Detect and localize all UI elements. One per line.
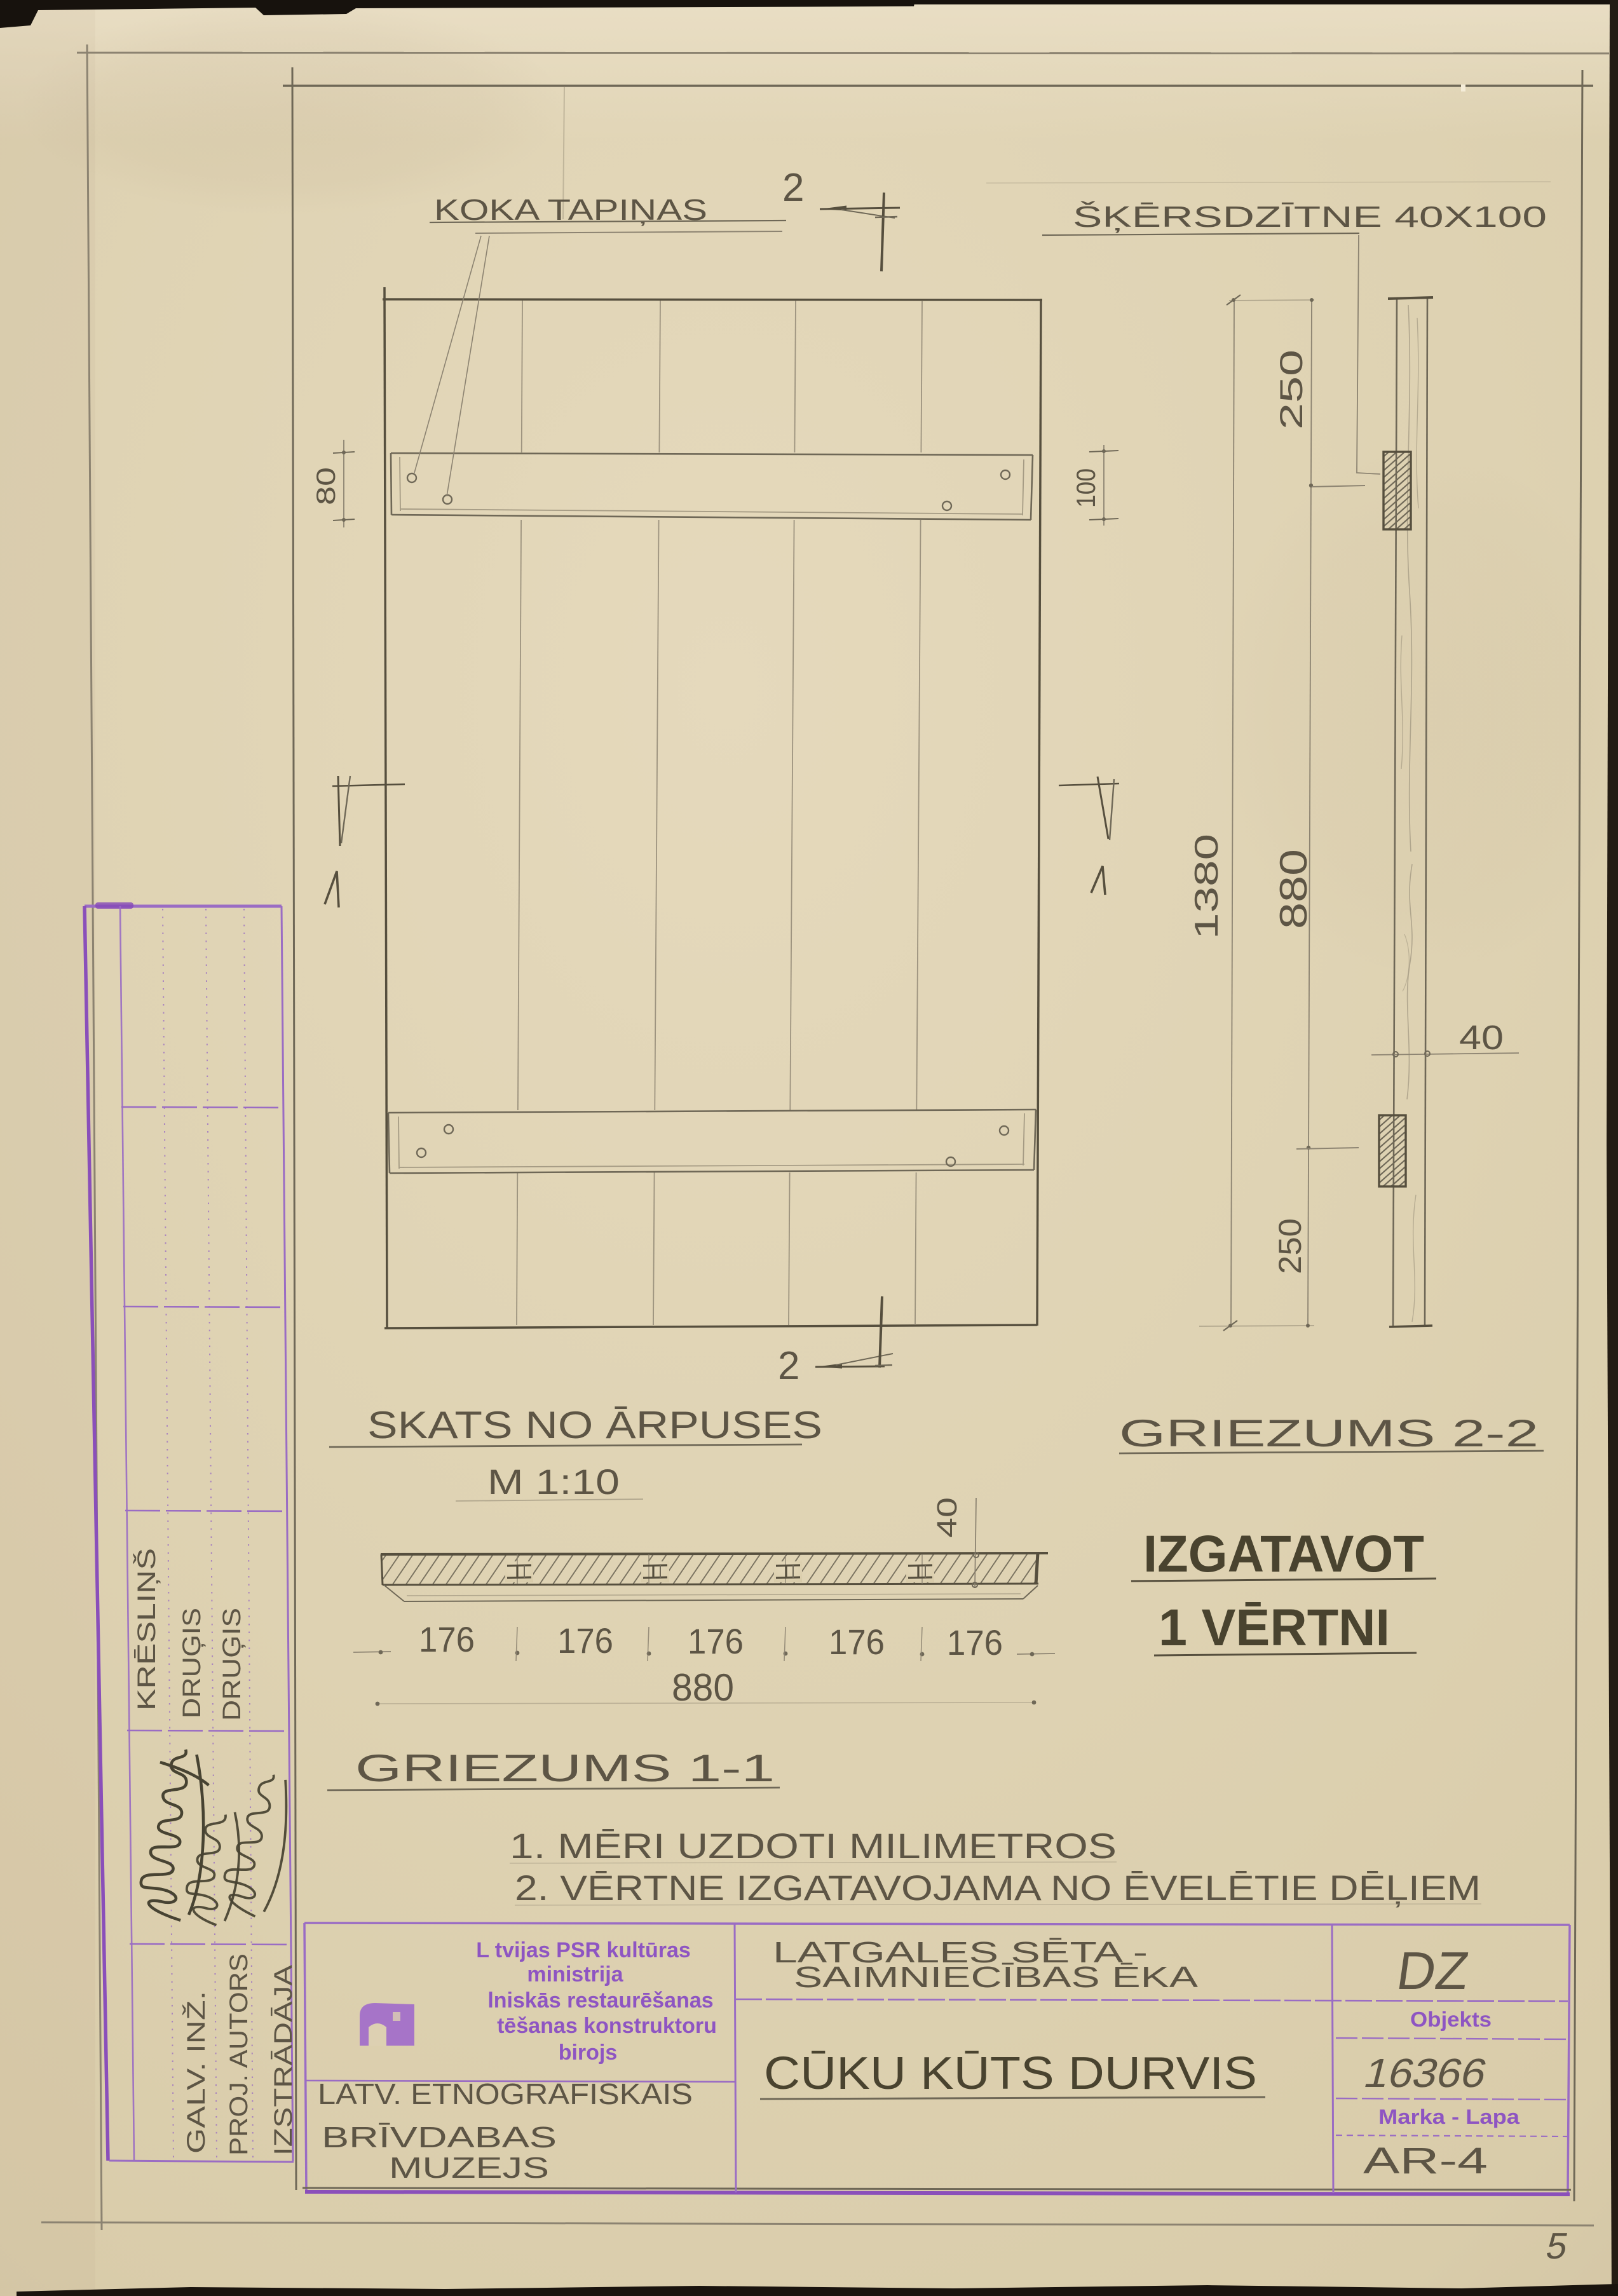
svg-text:GRIEZUMS 2-2: GRIEZUMS 2-2 — [1119, 1412, 1539, 1455]
svg-text:40: 40 — [932, 1497, 963, 1538]
svg-text:tēšanas konstruktoru: tēšanas konstruktoru — [497, 2014, 717, 2038]
svg-text:176: 176 — [688, 1621, 744, 1661]
svg-text:176: 176 — [829, 1622, 885, 1662]
svg-text:1380: 1380 — [1188, 834, 1225, 939]
svg-text:IZSTRĀDĀJA: IZSTRĀDĀJA — [269, 1965, 297, 2156]
svg-text:880: 880 — [672, 1666, 734, 1709]
svg-text:LATV. ETNOGRAFISKAIS: LATV. ETNOGRAFISKAIS — [318, 2077, 693, 2110]
svg-text:PROJ. AUTORS: PROJ. AUTORS — [225, 1953, 253, 2156]
svg-text:176: 176 — [947, 1622, 1003, 1662]
svg-text:GRIEZUMS 1-1: GRIEZUMS 1-1 — [355, 1747, 775, 1790]
svg-text:L tvijas PSR kultūras: L tvijas PSR kultūras — [476, 1938, 691, 1962]
svg-text:250: 250 — [1274, 350, 1309, 430]
svg-text:16366: 16366 — [1360, 2050, 1492, 2096]
svg-text:Marka - Lapa: Marka - Lapa — [1378, 2105, 1519, 2128]
svg-text:2: 2 — [778, 1344, 799, 1388]
svg-text:BRĪVDABAS: BRĪVDABAS — [322, 2121, 557, 2154]
svg-text:Objekts: Objekts — [1410, 2007, 1492, 2031]
svg-text:DRUĢIS: DRUĢIS — [218, 1608, 246, 1721]
svg-text:176: 176 — [557, 1620, 613, 1661]
svg-text:CŪKU KŪTS DURVIS: CŪKU KŪTS DURVIS — [764, 2048, 1257, 2099]
svg-text:ministrija: ministrija — [527, 1962, 623, 1987]
svg-text:lniskās restaurēšanas: lniskās restaurēšanas — [487, 1988, 713, 2013]
svg-text:250: 250 — [1272, 1218, 1308, 1274]
svg-text:40: 40 — [1459, 1019, 1504, 1057]
svg-text:80: 80 — [311, 467, 341, 505]
svg-text:880: 880 — [1272, 849, 1315, 929]
svg-text:ŠĶĒRSDZĪTNE 40X100: ŠĶĒRSDZĪTNE 40X100 — [1073, 200, 1547, 233]
svg-text:DZ: DZ — [1393, 1941, 1472, 2001]
svg-text:MUZEJS: MUZEJS — [389, 2151, 549, 2184]
svg-text:M 1:10: M 1:10 — [487, 1462, 620, 1502]
svg-text:AR-4: AR-4 — [1363, 2140, 1488, 2182]
svg-text:GALV. INŽ.: GALV. INŽ. — [182, 1991, 210, 2154]
svg-text:1. MĒRI UZDOTI MILIMETROS: 1. MĒRI UZDOTI MILIMETROS — [510, 1826, 1117, 1866]
svg-text:2: 2 — [782, 166, 804, 210]
svg-text:1 VĒRTNI: 1 VĒRTNI — [1159, 1599, 1390, 1657]
svg-text:birojs: birojs — [559, 2041, 618, 2065]
svg-text:DRUĢIS: DRUĢIS — [178, 1608, 206, 1718]
svg-text:100: 100 — [1071, 468, 1101, 508]
svg-text:176: 176 — [419, 1619, 475, 1659]
svg-text:KRĒSLIŅŠ: KRĒSLIŅŠ — [132, 1548, 161, 1711]
svg-text:2. VĒRTNE IZGATAVOJAMA NO ĒVEL: 2. VĒRTNE IZGATAVOJAMA NO ĒVELĒTIE DĒĻIE… — [515, 1868, 1481, 1908]
svg-text:SKATS NO ĀRPUSES: SKATS NO ĀRPUSES — [367, 1404, 822, 1446]
svg-text:IZGATAVOT: IZGATAVOT — [1143, 1525, 1424, 1583]
svg-text:SAIMNIECĪBAS ĒKA: SAIMNIECĪBAS ĒKA — [794, 1960, 1198, 1994]
